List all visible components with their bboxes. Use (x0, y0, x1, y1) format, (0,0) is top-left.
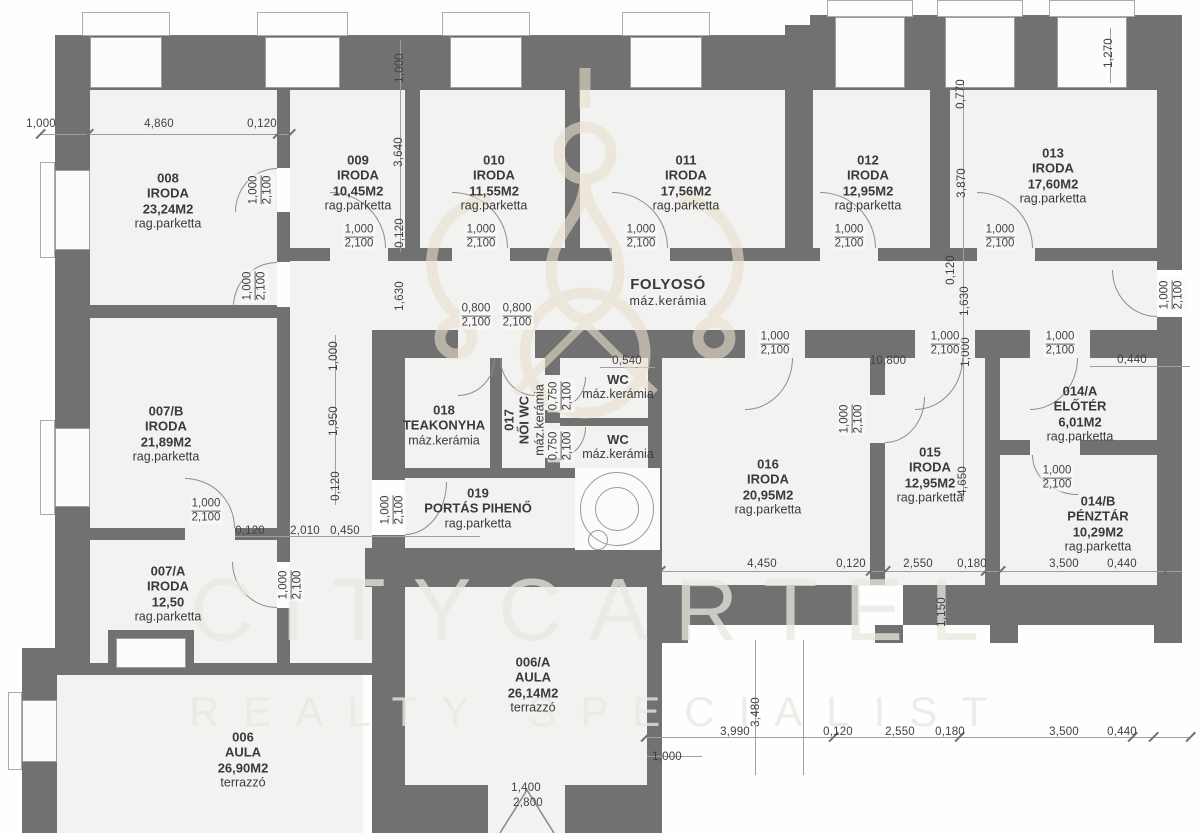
door-size-value: 2,100 (261, 176, 275, 205)
door-size-value: 0,800 (462, 303, 491, 316)
dimension-label: 1,000 (394, 53, 406, 83)
room-label: 014/BPÉNZTÁR10,29M2rag.parketta (1065, 494, 1132, 555)
door-size-value: 2,100 (1172, 281, 1186, 310)
dimension-label: 0,120 (330, 471, 342, 501)
room-label: WCmáz.kerámia (582, 372, 654, 402)
door-size-value: 1,000 (627, 224, 656, 237)
dimension-label: 2,800 (513, 797, 543, 809)
door-size-value: 2,100 (345, 237, 374, 251)
door-size-label: 0,7502,100 (548, 430, 575, 463)
dimension-label: 0,120 (235, 525, 265, 537)
dimension-line (40, 134, 290, 135)
brand-logo-watermark (360, 48, 800, 438)
room-label-line: 12,95M2 (897, 475, 964, 490)
door-size-value: 1,000 (248, 176, 261, 205)
door-size-value: 2,100 (462, 316, 491, 330)
room-label-line: 17,60M2 (1020, 176, 1087, 191)
window-sill (40, 162, 55, 258)
fixture-circle (588, 530, 608, 550)
room-label-line: 011 (653, 153, 720, 168)
door-size-value: 1,000 (986, 224, 1015, 237)
door-size-value: 2,100 (291, 571, 305, 600)
room-label-line: 007/B (133, 404, 200, 419)
door-size-value: 2,100 (503, 316, 532, 330)
room-label-line: máz.kerámia (403, 433, 485, 448)
room-label-line: 10,45M2 (325, 183, 392, 198)
door-size-value: 0,750 (548, 382, 561, 411)
door-size-label: 1,0002,100 (1044, 331, 1077, 358)
door-size-label: 1,0002,100 (1041, 465, 1074, 492)
wall (277, 307, 290, 538)
dimension-label: 0,120 (247, 118, 277, 130)
door-size-label: 1,0002,100 (839, 403, 866, 436)
room-label-line: rag.parketta (325, 199, 392, 214)
room-label-line: FOLYOSÓ (629, 276, 706, 294)
door-size-value: 0,750 (548, 432, 561, 461)
dimension-label: 3,480 (750, 697, 762, 727)
wall (1154, 625, 1182, 643)
window-sill (82, 12, 170, 36)
door-size-label: 1,0002,100 (190, 498, 223, 525)
dimension-label: 0,120 (836, 558, 866, 570)
wall (372, 785, 488, 833)
room-label-line: 26,14M2 (508, 685, 559, 700)
room-label-line: ELŐTÉR (1047, 399, 1114, 414)
room-label: 009IRODA10,45M2rag.parketta (325, 153, 392, 214)
door-size-value: 1,000 (835, 224, 864, 237)
room-label: 015IRODA12,95M2rag.parketta (897, 445, 964, 506)
door-size-value: 2,100 (761, 344, 790, 358)
door-size-value: 2,100 (852, 405, 866, 434)
window-sill (257, 12, 348, 36)
room-label-line: rag.parketta (424, 516, 532, 531)
room-label-line: máz.kerámia (582, 447, 654, 462)
door-size-value: 1,000 (278, 571, 291, 600)
room-label: 017NŐI WCmáz.kerámia (501, 384, 546, 456)
fixture-circle (595, 487, 639, 531)
dimension-label: 1,000 (652, 751, 682, 763)
dimension-label: 0,450 (330, 525, 360, 537)
window-sill (937, 0, 1023, 17)
room-label: 013IRODA17,60M2rag.parketta (1020, 146, 1087, 207)
room-label-line: 10,29M2 (1065, 524, 1132, 539)
room-label: 019PORTÁS PIHENŐrag.parketta (424, 485, 532, 530)
window-sill (8, 692, 22, 770)
door-size-value: 2,100 (255, 272, 269, 301)
room-label: 016IRODA20,95M2rag.parketta (735, 457, 802, 518)
room-label-line: 23,24M2 (135, 201, 202, 216)
room-label-line: 012 (835, 153, 902, 168)
door-size-value: 1,000 (467, 224, 496, 237)
room-label-line: NŐI WC (517, 384, 532, 456)
room-label-line: 009 (325, 153, 392, 168)
room-label-line: AULA (508, 670, 559, 685)
dimension-label: 1,150 (936, 597, 948, 627)
door-size-value: 1,000 (931, 331, 960, 344)
door-size-value: 1,000 (839, 405, 852, 434)
wall (1000, 440, 1030, 455)
door-size-label: 0,8002,100 (460, 303, 493, 330)
wall (1035, 248, 1157, 261)
door-size-value: 1,000 (1159, 281, 1172, 310)
dimension-label: 1,000 (960, 337, 972, 367)
dimension-line (1090, 366, 1190, 367)
dimension-label: 4,450 (747, 558, 777, 570)
dimension-label: 1,630 (959, 286, 971, 316)
door-size-label: 1,0002,100 (1159, 279, 1186, 312)
wall (277, 90, 290, 168)
dimension-label: 0,540 (612, 355, 642, 367)
room-label-line: IRODA (133, 419, 200, 434)
door-size-value: 1,000 (1043, 465, 1072, 478)
room-label: 012IRODA12,95M2rag.parketta (835, 153, 902, 214)
room-label-line: PORTÁS PIHENŐ (424, 501, 532, 516)
door-size-value: 2,100 (561, 432, 575, 461)
dimension-label: 1,000 (26, 118, 56, 130)
room-label-line: rag.parketta (735, 503, 802, 518)
wall (1157, 15, 1182, 270)
room-label-line: IRODA (735, 472, 802, 487)
room-label-line: TEAKONYHA (403, 418, 485, 433)
door-size-value: 2,100 (192, 511, 221, 525)
room-label-line: IRODA (897, 460, 964, 475)
room-label: WCmáz.kerámia (582, 432, 654, 462)
dimension-label: 1,630 (394, 281, 406, 311)
door-size-label: 1,0002,100 (465, 224, 498, 251)
wall (55, 663, 375, 675)
dimension-label: 4,860 (144, 118, 174, 130)
dimension-label: 0,440 (1107, 726, 1137, 738)
room-label-line: 12,50 (135, 594, 202, 609)
dimension-label: 4,650 (957, 466, 969, 496)
dimension-label: 0,770 (955, 79, 967, 109)
wall (805, 330, 915, 358)
door-size-value: 2,100 (835, 237, 864, 251)
door-size-value: 1,000 (761, 331, 790, 344)
room-label-line: máz.kerámia (582, 387, 654, 402)
window (265, 37, 340, 88)
door-size-value: 2,100 (986, 237, 1015, 251)
door-size-value: 2,100 (561, 382, 575, 411)
window-sill (40, 420, 55, 515)
wall (55, 35, 90, 648)
wall (565, 785, 662, 833)
room-label-line: PÉNZTÁR (1065, 509, 1132, 524)
room-label-line: 007/A (135, 564, 202, 579)
room-label: 010IRODA11,55M2rag.parketta (461, 153, 528, 214)
room-label-line: AULA (218, 745, 269, 760)
dimension-label: 10,800 (870, 355, 906, 367)
door-size-value: 2,100 (627, 237, 656, 251)
door-size-label: 1,0002,100 (380, 494, 407, 527)
room-label-line: 013 (1020, 146, 1087, 161)
room-label-line: 6,01M2 (1047, 414, 1114, 429)
watermark-brand-text: CITYCARTEL (190, 559, 1006, 661)
room-label: 007/BIRODA21,89M2rag.parketta (133, 404, 200, 465)
room-label-line: 014/B (1065, 494, 1132, 509)
window-sill (827, 0, 913, 17)
room-label-line: terrazzó (218, 776, 269, 791)
floor-plan: CITYCARTEL REALTY SPECIALIST 008IRODA23,… (0, 0, 1200, 833)
door-size-value: 1,000 (192, 498, 221, 511)
room-label-line: 006/A (508, 655, 559, 670)
door-size-label: 1,0002,100 (929, 331, 962, 358)
door-size-value: 0,800 (503, 303, 532, 316)
room-label-line: 008 (135, 171, 202, 186)
door-size-label: 1,0002,100 (625, 224, 658, 251)
door-size-value: 2,100 (393, 496, 407, 525)
room-label: 011IRODA17,56M2rag.parketta (653, 153, 720, 214)
door-size-value: 1,000 (345, 224, 374, 237)
window (55, 428, 90, 507)
room-label-line: IRODA (325, 168, 392, 183)
dimension-label: 0,120 (394, 218, 406, 248)
window (835, 17, 905, 88)
dimension-label: 0,440 (1117, 354, 1147, 366)
room-label-line: 21,89M2 (133, 434, 200, 449)
door-size-label: 0,7502,100 (548, 380, 575, 413)
room-label: 007/AIRODA12,50rag.parketta (135, 564, 202, 625)
wall (985, 330, 1000, 585)
window (945, 17, 1015, 88)
dimension-label: 3,500 (1049, 558, 1079, 570)
room-label-line: rag.parketta (135, 217, 202, 232)
room-label-line: 26,90M2 (218, 760, 269, 775)
room-label-line: IRODA (135, 579, 202, 594)
door-size-value: 2,100 (467, 237, 496, 251)
door-size-value: 2,100 (931, 344, 960, 358)
door-size-label: 1,0002,100 (242, 270, 269, 303)
dimension-label: 1,270 (1103, 38, 1115, 68)
room-label: 014/AELŐTÉR6,01M2rag.parketta (1047, 384, 1114, 445)
room-label-line: 014/A (1047, 384, 1114, 399)
door-size-label: 1,0002,100 (759, 331, 792, 358)
room-label-line: rag.parketta (1020, 192, 1087, 207)
window-sill (442, 12, 530, 36)
room-label-line: 018 (403, 402, 485, 417)
room-label-line: 11,55M2 (461, 183, 528, 198)
wall (55, 528, 185, 540)
room-label-line: 006 (218, 730, 269, 745)
wall (277, 212, 290, 262)
room-label-line: 016 (735, 457, 802, 472)
wall (975, 330, 1030, 358)
dimension-label: 2,010 (290, 525, 320, 537)
dimension-label: 3,500 (1049, 726, 1079, 738)
door-size-label: 1,0002,100 (984, 224, 1017, 251)
room-label-line: IRODA (461, 168, 528, 183)
window (90, 37, 162, 88)
room-label-line: IRODA (653, 168, 720, 183)
door-size-value: 1,000 (380, 496, 393, 525)
room-label-line: rag.parketta (653, 199, 720, 214)
room-label-line: WC (582, 432, 654, 447)
window-sill (622, 12, 710, 36)
window-sill (1049, 0, 1135, 17)
room-label: FOLYOSÓmáz.kerámia (629, 276, 706, 308)
door-size-label: 1,0002,100 (278, 569, 305, 602)
room-label-line: rag.parketta (1047, 430, 1114, 445)
dimension-label: 1,000 (328, 341, 340, 371)
window (1057, 17, 1127, 88)
room-label: 006AULA26,90M2terrazzó (218, 730, 269, 791)
window (22, 700, 57, 762)
room-label: 008IRODA23,24M2rag.parketta (135, 171, 202, 232)
room-label-line: máz.kerámia (629, 293, 706, 308)
dimension-label: 1,400 (511, 782, 541, 794)
room-label-line: rag.parketta (1065, 540, 1132, 555)
wall (290, 248, 330, 261)
wall (1157, 317, 1182, 625)
dimension-label: 1,950 (328, 406, 340, 436)
room-label: 018TEAKONYHAmáz.kerámia (403, 402, 485, 447)
room-label-line: máz.kerámia (532, 384, 547, 456)
room-label-line: 010 (461, 153, 528, 168)
dimension-label: 0,440 (1107, 558, 1137, 570)
door-size-value: 1,000 (242, 272, 255, 301)
room-label-line: rag.parketta (135, 610, 202, 625)
door-size-value: 1,000 (1046, 331, 1075, 344)
dimension-label: 2,550 (903, 558, 933, 570)
dimension-label: 0,180 (957, 558, 987, 570)
room-label-line: 017 (501, 384, 516, 456)
window (116, 638, 186, 668)
dimension-label: 0,120 (945, 255, 957, 285)
dimension-label: 3,990 (720, 726, 750, 738)
room-label-line: IRODA (1020, 161, 1087, 176)
door-size-label: 1,0002,100 (343, 224, 376, 251)
room-label-line: IRODA (835, 168, 902, 183)
room-label-line: 12,95M2 (835, 183, 902, 198)
room-label-line: 17,56M2 (653, 183, 720, 198)
room-label-line: WC (582, 372, 654, 387)
room-label: 006/AAULA26,14M2terrazzó (508, 655, 559, 716)
room-label-line: rag.parketta (461, 199, 528, 214)
dimension-label: 3,870 (956, 168, 968, 198)
room-label-line: 20,95M2 (735, 487, 802, 502)
door-size-value: 2,100 (1043, 478, 1072, 492)
room-label-line: terrazzó (508, 701, 559, 716)
door-size-value: 2,100 (1046, 344, 1075, 358)
room-label-line: rag.parketta (897, 491, 964, 506)
dimension-label: 0,120 (823, 726, 853, 738)
room-label-line: 015 (897, 445, 964, 460)
dimension-label: 3,640 (393, 137, 405, 167)
room-label-line: rag.parketta (133, 450, 200, 465)
door-size-label: 1,0002,100 (833, 224, 866, 251)
dimension-label: 2,550 (885, 726, 915, 738)
room-label-line: 019 (424, 485, 532, 500)
door-size-label: 1,0002,100 (248, 174, 275, 207)
window (55, 170, 90, 250)
dimension-label: 0,180 (935, 726, 965, 738)
room-label-line: rag.parketta (835, 199, 902, 214)
door-size-label: 0,8002,100 (501, 303, 534, 330)
room-label-line: IRODA (135, 186, 202, 201)
